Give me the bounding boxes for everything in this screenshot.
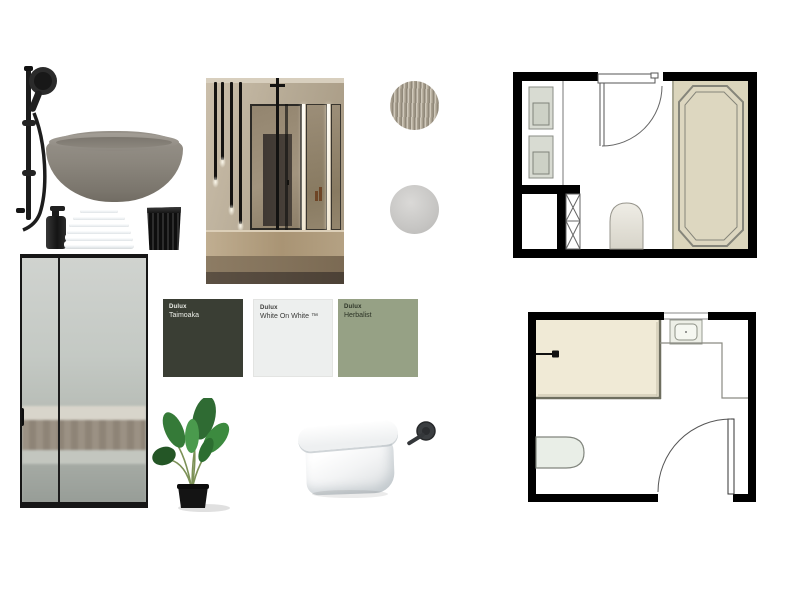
mirror-panel bbox=[306, 104, 327, 230]
shower-screen-image[interactable] bbox=[20, 254, 148, 508]
bottle bbox=[315, 191, 318, 201]
wall-hung-toilet-image[interactable] bbox=[298, 418, 402, 498]
bathroom-interior-photo[interactable] bbox=[206, 78, 344, 284]
towel bbox=[65, 234, 133, 241]
photo-floor bbox=[206, 272, 344, 284]
freestanding-bathtub-image[interactable] bbox=[46, 131, 183, 202]
reflection-floor bbox=[22, 464, 146, 506]
paint-chip-white[interactable]: Dulux White On White ™ bbox=[253, 299, 333, 377]
ceiling-tap-reflection bbox=[285, 104, 288, 230]
mood-board: Dulux Taimoaka Dulux White On White ™ Du… bbox=[0, 0, 800, 600]
bathroom-tumbler-image[interactable] bbox=[147, 207, 181, 250]
photo-ceiling bbox=[206, 78, 344, 83]
paint-name: White On White ™ bbox=[260, 313, 326, 321]
wall-mixer-tap-image[interactable] bbox=[402, 420, 438, 452]
pendant-light bbox=[221, 82, 224, 160]
vanity-drawers bbox=[206, 256, 344, 272]
floor-plan-shower-graphic bbox=[528, 312, 756, 502]
tumbler-top bbox=[147, 207, 181, 213]
towel-stack-image[interactable] bbox=[64, 206, 134, 248]
fluted-tile-swatch[interactable] bbox=[390, 81, 439, 130]
pendant-light bbox=[230, 82, 233, 208]
floor-plan-bath-graphic bbox=[513, 72, 757, 258]
bottle bbox=[319, 187, 322, 201]
paint-chip-sage[interactable]: Dulux Herbalist bbox=[338, 299, 418, 377]
paint-name: Herbalist bbox=[344, 312, 412, 320]
paint-brand: Dulux bbox=[169, 304, 237, 311]
towel bbox=[80, 206, 118, 213]
pendant-glow bbox=[212, 176, 219, 188]
screen-glass bbox=[22, 258, 146, 502]
dispenser-body bbox=[46, 216, 66, 249]
concrete-swatch[interactable] bbox=[390, 185, 439, 234]
pendant-light bbox=[214, 82, 217, 180]
reflection-vanity bbox=[22, 420, 146, 450]
grey-marble-swatch[interactable] bbox=[390, 131, 439, 180]
screen-mullion bbox=[58, 258, 60, 502]
tap-graphic bbox=[402, 420, 438, 452]
floor-plan-shower[interactable] bbox=[528, 312, 756, 502]
reflection-band bbox=[22, 450, 146, 464]
plant-graphic bbox=[148, 398, 236, 512]
paint-name: Taimoaka bbox=[169, 312, 237, 320]
floor-plan-bath[interactable] bbox=[513, 72, 757, 258]
paint-brand: Dulux bbox=[260, 305, 326, 312]
ceiling-tap bbox=[276, 78, 279, 230]
potted-plant-image[interactable] bbox=[148, 398, 236, 512]
paint-brand: Dulux bbox=[344, 304, 412, 311]
pendant-light bbox=[239, 82, 242, 224]
towel bbox=[69, 220, 129, 227]
towel bbox=[73, 213, 125, 220]
led-strip bbox=[327, 104, 330, 230]
led-strip bbox=[302, 104, 305, 230]
bathtub-cavity bbox=[56, 137, 172, 148]
mirror-panel bbox=[331, 104, 341, 230]
toilet-shadow bbox=[312, 490, 388, 498]
timber-vanity bbox=[206, 230, 344, 258]
reflection-band bbox=[22, 406, 146, 420]
screen-handle bbox=[20, 408, 24, 426]
towel bbox=[67, 227, 131, 234]
towel bbox=[64, 241, 134, 248]
pendant-glow bbox=[219, 156, 226, 168]
paint-chip-dark-green[interactable]: Dulux Taimoaka bbox=[163, 299, 243, 377]
pendant-glow bbox=[228, 204, 235, 216]
